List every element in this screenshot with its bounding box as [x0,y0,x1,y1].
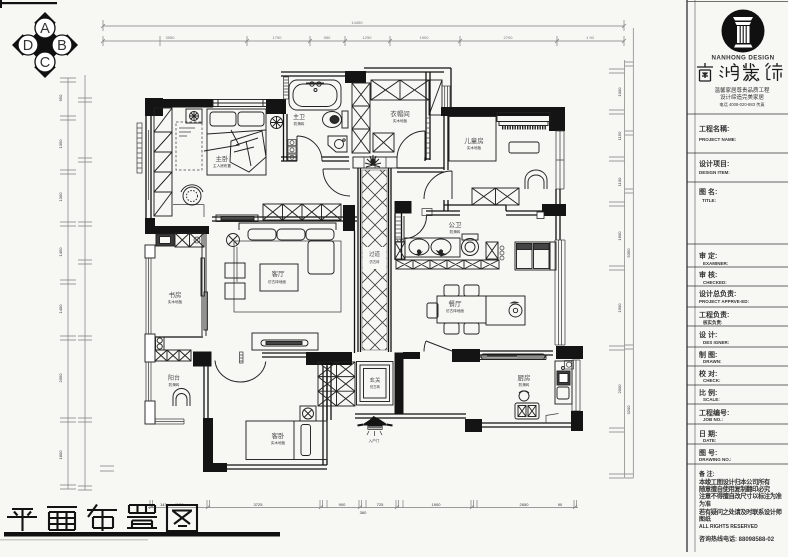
svg-text:设计缔造完美家居: 设计缔造完美家居 [720,93,765,101]
svg-text:图 号:: 图 号: [699,448,717,457]
svg-text:仿古砖地面: 仿古砖地面 [446,308,464,313]
svg-text:CHECK:: CHECK: [703,378,721,383]
svg-text:工程负责:: 工程负责: [699,310,729,319]
svg-text:SCALE:: SCALE: [703,397,720,402]
svg-text:1800: 1800 [58,450,63,460]
svg-text:审 定:: 审 定: [699,251,717,260]
svg-text:1350: 1350 [58,139,63,149]
svg-text:1900: 1900 [617,303,622,313]
svg-text:校 对:: 校 对: [699,369,717,378]
svg-text:过道: 过道 [369,250,381,258]
svg-text:厨房: 厨房 [518,373,531,382]
svg-text:1750: 1750 [273,35,283,40]
svg-text:玄关: 玄关 [369,376,381,384]
svg-text:ALL RIGHTS RESERVED: ALL RIGHTS RESERVED [699,524,758,530]
svg-text:DRAWING NO.:: DRAWING NO.: [699,457,732,462]
svg-text:实木地板: 实木地板 [467,145,482,150]
svg-text:设 计:: 设 计: [699,330,717,339]
svg-text:950: 950 [58,94,63,101]
svg-text:图纸: 图纸 [699,515,711,523]
svg-text:仿古砖地面: 仿古砖地面 [268,279,286,284]
svg-text:防滑砖: 防滑砖 [519,382,530,387]
svg-text:书房: 书房 [169,290,182,299]
svg-text:主卫: 主卫 [293,113,305,121]
svg-text:防滑砖: 防滑砖 [294,121,305,126]
svg-text:衣帽间: 衣帽间 [390,109,410,118]
svg-text:工程名稱:: 工程名稱: [699,124,729,133]
svg-text:JOB NO.:: JOB NO.: [703,417,724,422]
svg-text:客卧: 客卧 [272,431,286,440]
svg-text:电话 4008-020-883 传真: 电话 4008-020-883 传真 [719,101,764,108]
svg-text:2050: 2050 [58,373,63,383]
svg-text:仿古砖: 仿古砖 [369,259,380,264]
svg-text:1900: 1900 [420,35,430,40]
svg-text:90: 90 [558,502,563,507]
svg-text:14450: 14450 [351,20,363,25]
svg-text:2000: 2000 [617,384,622,394]
svg-text:2700: 2700 [504,35,514,40]
svg-text:备 注:: 备 注: [698,470,715,478]
svg-text:主卧: 主卧 [216,154,230,163]
svg-text:注意不得擅自改尺寸以标注为准: 注意不得擅自改尺寸以标注为准 [699,491,783,500]
svg-text:图 名:: 图 名: [699,187,717,196]
svg-text:实木地板: 实木地板 [393,118,408,123]
svg-text:360: 360 [360,510,367,515]
svg-text:5350: 5350 [626,248,631,258]
svg-text:1600: 1600 [617,231,622,241]
svg-text:A: A [40,21,50,37]
svg-text:3950: 3950 [166,35,176,40]
svg-text:DES IGNER:: DES IGNER: [703,340,730,345]
svg-text:B: B [57,38,67,54]
svg-text:仿古砖: 仿古砖 [370,384,381,389]
svg-text:1150: 1150 [617,131,622,140]
svg-text:咨询热线电话: 88098588-02: 咨询热线电话: 88098588-02 [699,535,775,543]
svg-text:客厅: 客厅 [272,269,286,278]
svg-text:本竣工图设计归本公司所有: 本竣工图设计归本公司所有 [698,477,771,486]
svg-text:随意擅自使用复制翻印必究: 随意擅自使用复制翻印必究 [699,484,771,493]
svg-text:若有疑问之处请及时联系设计师: 若有疑问之处请及时联系设计师 [699,507,783,516]
svg-text:核实负责:: 核实负责: [703,319,723,326]
svg-text:比 例:: 比 例: [699,388,717,397]
svg-text:1000: 1000 [617,87,622,97]
svg-text:1 90: 1 90 [586,35,595,40]
svg-text:3725: 3725 [254,502,264,507]
svg-text:TITLE:: TITLE: [702,198,716,203]
svg-text:阳台: 阳台 [168,374,180,382]
svg-text:1100: 1100 [617,177,622,186]
svg-text:1400: 1400 [58,304,63,314]
svg-text:主人房布置: 主人房布置 [213,163,231,168]
svg-text:入户门: 入户门 [369,438,380,443]
svg-text:D: D [23,38,33,54]
svg-text:审 核:: 审 核: [699,270,717,279]
svg-text:C: C [40,55,50,71]
svg-text:温馨家居尊贵品质工程: 温馨家居尊贵品质工程 [714,86,770,94]
svg-text:制 图:: 制 图: [699,350,717,359]
svg-text:725: 725 [377,502,384,507]
svg-text:设计项目:: 设计项目: [699,159,729,168]
svg-text:DESIGN ITEM:: DESIGN ITEM: [699,170,730,175]
svg-text:3200: 3200 [626,405,631,415]
svg-text:为准: 为准 [699,500,711,508]
svg-text:设计总负责:: 设计总负责: [699,289,736,298]
svg-text:900: 900 [339,502,346,507]
svg-text:1300: 1300 [58,192,63,202]
svg-text:实木地板: 实木地板 [271,440,286,445]
svg-text:NANHONG DESIGN: NANHONG DESIGN [711,55,774,62]
svg-text:防滑砖: 防滑砖 [450,229,461,234]
svg-text:日 期:: 日 期: [699,429,717,438]
svg-text:工程编号:: 工程编号: [699,408,729,417]
svg-text:1450: 1450 [58,247,63,257]
svg-text:DRAWN:: DRAWN: [703,359,722,364]
svg-text:PROJECT NAME:: PROJECT NAME: [699,137,737,142]
svg-text:1900: 1900 [432,502,442,507]
svg-text:2650: 2650 [520,502,530,507]
svg-text:儿童房: 儿童房 [464,136,484,145]
svg-text:950: 950 [324,35,331,40]
svg-text:实木地板: 实木地板 [168,299,183,304]
svg-text:防滑砖: 防滑砖 [169,382,180,387]
svg-text:DATE:: DATE: [703,438,717,443]
svg-text:PROJECT APPRVE-ED:: PROJECT APPRVE-ED: [699,299,750,304]
svg-text:EXAMINER:: EXAMINER: [703,261,729,266]
svg-text:公卫: 公卫 [449,221,463,229]
svg-text:CHECKED:: CHECKED: [703,280,727,285]
svg-text:1250: 1250 [363,35,373,40]
svg-text:餐厅: 餐厅 [449,299,463,308]
